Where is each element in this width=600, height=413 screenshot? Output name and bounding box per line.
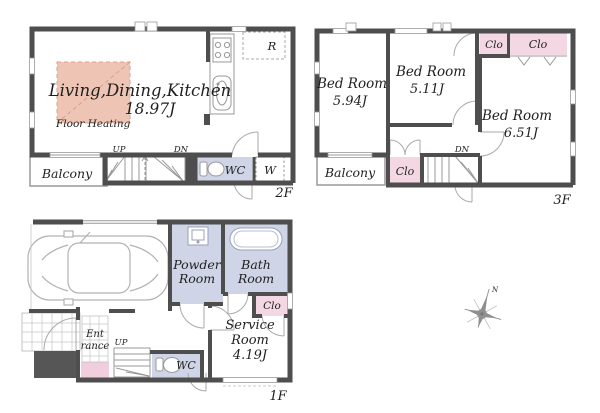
- wc-1f-label: WC: [176, 359, 196, 372]
- dn-3f-label: DN: [454, 145, 470, 155]
- kitchen-counter: [210, 34, 234, 114]
- ldk-size-label: 18.97J: [125, 100, 176, 118]
- floor-plan-2f: Living,Dining,Kitchen 18.97J Floor Heati…: [22, 18, 302, 204]
- floor-3f-label: 3F: [553, 193, 571, 208]
- toilet-icon-2f: [200, 162, 224, 176]
- stairs-2f: [106, 155, 185, 183]
- compass-rose: [461, 284, 509, 333]
- closet-top-small-label: Clo: [485, 39, 503, 51]
- bath-room-label-2: Room: [237, 271, 274, 286]
- floor-plan-page: Living,Dining,Kitchen 18.97J Floor Heati…: [0, 0, 600, 413]
- closet-folding-doors: [510, 56, 567, 65]
- car-icon: [28, 231, 168, 305]
- bedroom-right-label: Bed Room: [481, 108, 552, 124]
- floor-1f-label: 1F: [269, 389, 287, 404]
- bath-room-label-1: Bath: [240, 257, 271, 272]
- fridge-label: R: [267, 39, 277, 53]
- powder-room-label-2: Room: [178, 271, 215, 286]
- closet-1f-label: Clo: [263, 300, 281, 312]
- bathtub-icon: [230, 228, 282, 250]
- closet-top-wide-label: Clo: [529, 38, 548, 51]
- bedroom-left-size: 5.94J: [333, 94, 368, 109]
- up-1f-label: UP: [115, 338, 128, 348]
- stairs-1f: [114, 348, 150, 377]
- dn-2f-label: DN: [173, 145, 189, 155]
- powder-room-label-1: Powder: [172, 257, 222, 272]
- balcony-2f-label: Balcony: [41, 166, 93, 181]
- entrance-step: [81, 362, 109, 378]
- entrance-label-2: rance: [81, 341, 110, 352]
- bedroom-right-size: 6.51J: [504, 126, 539, 141]
- garage-shutter: [83, 221, 157, 224]
- floor-plan-1f: Powder Room Bath Room Clo Service Room 4…: [20, 210, 305, 410]
- up-2f-label: UP: [113, 145, 126, 155]
- closet-hall-label: Clo: [396, 165, 415, 178]
- service-room-label-2: Room: [230, 333, 269, 348]
- planter-dark-block: [34, 351, 79, 378]
- bedroom-mid-size: 5.11J: [410, 82, 445, 97]
- compass-icon: N: [452, 282, 516, 346]
- entrance-label-1: Ent: [85, 329, 105, 340]
- ldk-label: Living,Dining,Kitchen: [48, 81, 232, 100]
- powder-sink-icon: [188, 227, 208, 245]
- stove-icon: [213, 38, 231, 62]
- bedroom-left-label: Bed Room: [316, 76, 387, 92]
- floor-plan-3f: Bed Room 5.94J Bed Room 5.11J Bed Room 6…: [310, 18, 578, 208]
- floor-2f-label: 2F: [274, 186, 293, 201]
- floor-heating-label: Floor Heating: [55, 118, 131, 130]
- refrigerator-space: [243, 32, 285, 59]
- service-room-label-1: Service: [225, 318, 275, 333]
- balcony-3f-label: Balcony: [324, 165, 376, 180]
- bedroom-mid-label: Bed Room: [395, 64, 466, 80]
- stairs-3f: [428, 155, 478, 185]
- compass-north-label: N: [491, 286, 499, 294]
- service-room-size: 4.19J: [232, 348, 268, 363]
- wc-2f-label: WC: [225, 163, 246, 177]
- washer-label: W: [264, 163, 277, 177]
